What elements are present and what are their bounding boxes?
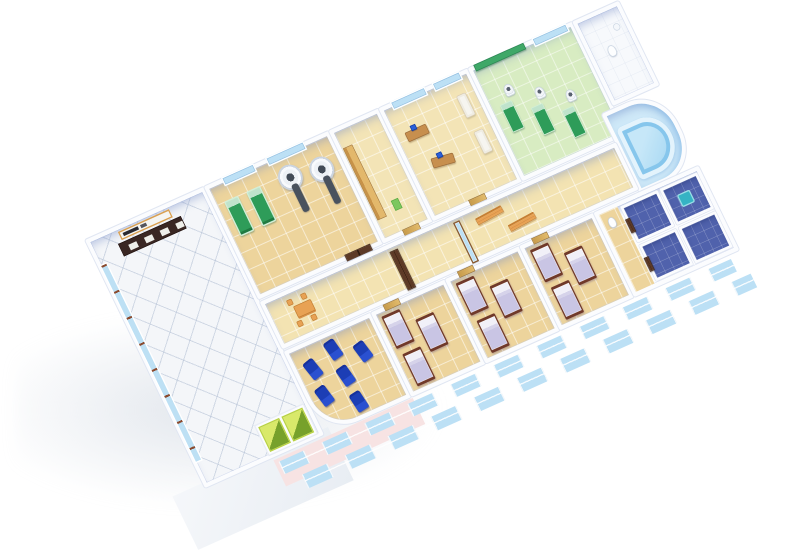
glass-sliding-door: [453, 220, 479, 264]
chair: [286, 298, 294, 306]
window: [265, 141, 307, 167]
couch: [473, 128, 493, 154]
wooden-bench: [475, 205, 504, 226]
window: [531, 23, 570, 47]
toilet: [606, 44, 619, 58]
window: [221, 163, 258, 186]
exam-bed-green: [246, 186, 277, 227]
patient-bed: [476, 313, 510, 353]
recliner-chair-blue: [352, 340, 374, 363]
recliner-chair-blue: [314, 384, 336, 407]
window: [389, 86, 428, 110]
patient-bed: [381, 309, 415, 349]
couch: [456, 92, 476, 118]
patient-bed: [456, 276, 490, 316]
green-wall-panel: [473, 43, 526, 72]
recliner-chair-blue: [302, 357, 324, 380]
patient-bed: [530, 242, 564, 282]
ct-patient-table: [322, 175, 342, 205]
chair: [296, 320, 304, 328]
patient-bed: [402, 346, 436, 386]
treatment-table-green: [531, 103, 556, 135]
recliner-chair-blue: [348, 390, 369, 413]
patient-bed: [551, 280, 585, 320]
shower-tray-teal: [677, 189, 696, 207]
desk: [404, 124, 429, 143]
ct-scanner: [274, 161, 307, 194]
green-mat: [391, 198, 403, 211]
double-door-dark: [389, 249, 416, 291]
treatment-table-green: [500, 100, 525, 132]
ct-patient-table: [291, 183, 311, 213]
chair: [310, 313, 318, 321]
recliner-chair-blue: [322, 338, 343, 361]
desk: [430, 153, 455, 169]
chair: [300, 292, 308, 300]
floorplan-scene: [0, 0, 800, 550]
recliner-chair-blue: [335, 364, 356, 387]
wooden-bench: [508, 211, 537, 232]
c-arm-machine: [564, 88, 578, 103]
treatment-table-green: [562, 106, 587, 138]
ct-scanner: [305, 153, 338, 186]
sink: [612, 22, 622, 32]
c-arm-machine: [533, 85, 547, 100]
window: [431, 71, 463, 92]
c-arm-machine: [502, 82, 516, 97]
